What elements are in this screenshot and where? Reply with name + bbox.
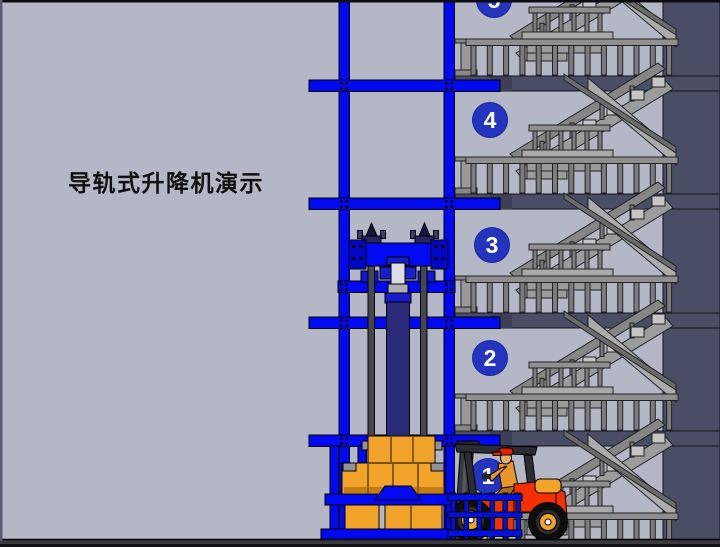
floor-badge-3: 3 xyxy=(475,228,510,263)
mast-tie-beam xyxy=(309,80,500,92)
top-border xyxy=(0,0,720,3)
safety-cage xyxy=(448,493,522,540)
ground xyxy=(0,539,720,547)
rear-wheel xyxy=(529,503,568,542)
control-lever xyxy=(482,474,491,479)
floor-badge-label: 2 xyxy=(484,345,497,371)
crosshead-plate-left xyxy=(349,240,366,269)
lift-demo-scene: 54321 xyxy=(0,0,720,547)
floor-badge-2: 2 xyxy=(473,341,508,376)
demo-title: 导轨式升降机演示 xyxy=(68,164,264,198)
floor-badge-4: 4 xyxy=(473,103,508,138)
mast-tie-beam xyxy=(309,198,500,210)
lift-demo-screen: 54321 xyxy=(0,0,720,547)
crosshead-plate-right xyxy=(431,240,448,269)
left-border xyxy=(0,0,3,541)
platform-post xyxy=(330,446,339,534)
floor-badge-label: 3 xyxy=(486,232,499,258)
cap-brim xyxy=(493,452,501,456)
floor-badge-label: 4 xyxy=(484,107,497,133)
fuel-tank xyxy=(535,479,561,493)
